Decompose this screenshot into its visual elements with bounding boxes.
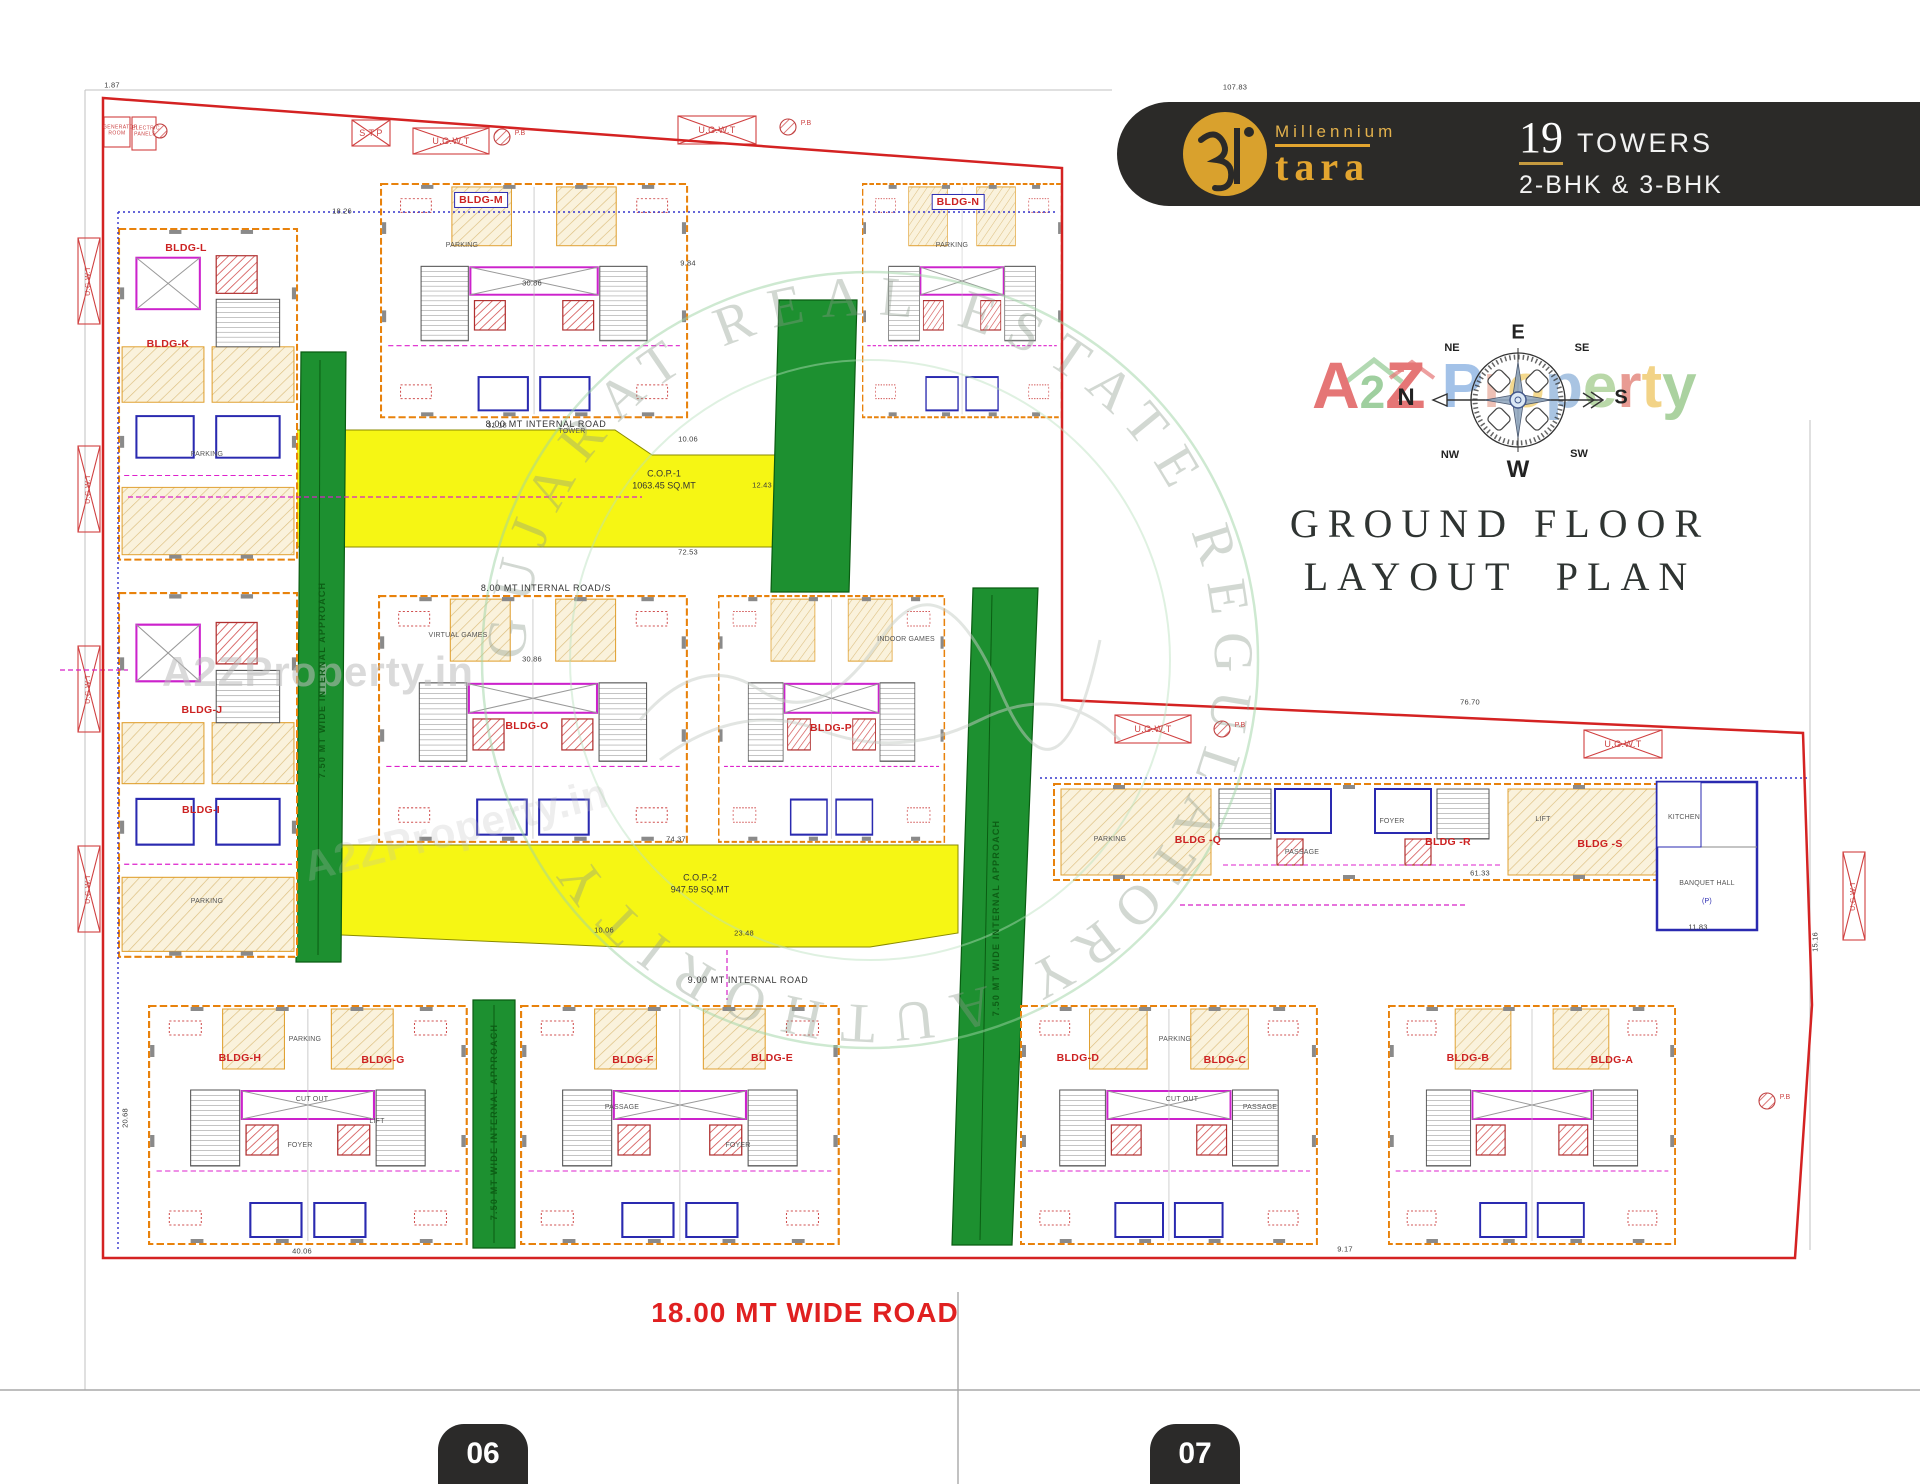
bldg-label-f: BLDG-F — [612, 1054, 653, 1066]
cop2-label: C.O.P.-2 947.59 SQ.MT — [671, 872, 730, 895]
project-stats: 19 TOWERS 2-BHK & 3-BHK — [1519, 116, 1723, 200]
room-label-parking-5: PARKING — [1094, 836, 1126, 844]
room-label-foyer-2: FOYER — [725, 1142, 750, 1150]
fold-marks — [0, 1292, 1920, 1484]
dim-61-33: 61.33 — [1470, 870, 1490, 879]
dim-76-70: 76.70 — [1460, 699, 1480, 708]
approach-road-upper-right — [771, 300, 857, 592]
bldg-label-m: BLDG-M — [454, 192, 508, 208]
cluster-center-right — [719, 596, 945, 842]
room-label-virtual-games: VIRTUAL GAMES — [428, 632, 487, 640]
room-label-foyer-1: FOYER — [287, 1142, 312, 1150]
room-label-parking-6: PARKING — [289, 1036, 321, 1044]
ugwt-label-right-2: U.G.W.T — [1604, 739, 1641, 749]
ugwt-label-left-2: U.G.W.T — [85, 474, 93, 504]
dim-9-17: 9.17 — [1337, 1246, 1352, 1255]
brand-name-label: tara — [1275, 144, 1370, 187]
dim-10-06-b: 10.06 — [594, 927, 614, 936]
ugwt-label-right-1: U.G.W.T — [1134, 724, 1171, 734]
dim-107-83: 107.83 — [1223, 84, 1247, 93]
room-label-banquet-unit: (P) — [1702, 898, 1712, 906]
page-title: GROUND FLOOR LAYOUT PLAN — [1280, 500, 1720, 600]
internal-road-label-3: 9.00 MT INTERNAL ROAD — [688, 975, 809, 985]
pb-label-2: P.B — [801, 120, 811, 128]
cluster-bottom-4 — [1389, 1006, 1675, 1244]
brand-wordmark: Millennium tara — [1275, 122, 1475, 187]
dim-30-86-b: 30.86 — [522, 656, 542, 665]
room-label-passage-2: PASSAGE — [1243, 1104, 1277, 1112]
bldg-label-a: BLDG-A — [1591, 1054, 1634, 1066]
compass-sw-label: SW — [1570, 448, 1588, 460]
ugwt-label-left-4: U.G.W.T — [85, 874, 93, 904]
bldg-label-b: BLDG-B — [1447, 1052, 1490, 1064]
approach-road-label-bottom: 7.50 MT WIDE INTERNAL APPROACH — [489, 1024, 499, 1221]
bldg-label-r: BLDG -R — [1425, 836, 1471, 848]
bldg-label-g: BLDG-G — [361, 1054, 404, 1066]
page-title-line1: GROUND FLOOR — [1280, 500, 1720, 547]
page-number-left[interactable]: 06 — [438, 1424, 528, 1484]
room-label-kitchen: KITCHEN — [1668, 814, 1700, 822]
bhk-label: 2-BHK & 3-BHK — [1519, 171, 1723, 200]
dim-10-06-a: 10.06 — [678, 436, 698, 445]
dim-23-48: 23.48 — [734, 930, 754, 939]
main-road-label: 18.00 MT WIDE ROAD — [651, 1297, 958, 1329]
antara-monogram-icon — [1181, 110, 1269, 198]
dim-1-87: 1.87 — [104, 82, 119, 91]
room-label-cutout-2: CUT OUT — [1166, 1096, 1198, 1104]
internal-road-label-2: 8.00 MT INTERNAL ROAD/S — [481, 583, 611, 593]
bldg-label-h: BLDG-H — [219, 1052, 262, 1064]
compass-n-label: N — [1397, 384, 1414, 412]
pb-label-4: P.B — [1780, 1094, 1790, 1102]
bldg-label-k: BLDG-K — [147, 338, 190, 350]
ugwt-label-top-1: U.G.W.T — [432, 136, 469, 146]
bldg-label-d: BLDG-D — [1057, 1052, 1100, 1064]
tower-count-label: TOWERS — [1577, 128, 1713, 159]
bldg-label-n: BLDG-N — [932, 194, 985, 210]
room-label-cutout-1: CUT OUT — [296, 1096, 328, 1104]
cluster-left-top — [119, 229, 297, 560]
room-label-lift-1: LIFT — [369, 1118, 384, 1126]
approach-road-label-left: 7.50 MT WIDE INTERNAL APPROACH — [317, 582, 327, 779]
bldg-label-l: BLDG-L — [165, 242, 206, 254]
banquet-hall-building — [1657, 782, 1757, 930]
pb-label-3: P.B — [1235, 722, 1245, 730]
generator-room-label: GENERATOR ROOM — [103, 125, 131, 137]
room-label-lift-2: LIFT — [1535, 816, 1550, 824]
layout-plan-sheet: GUJARAT REAL ESTATE REGULATORY AUTHORITY… — [0, 0, 1920, 1484]
page-number-right[interactable]: 07 — [1150, 1424, 1240, 1484]
cop1-label: C.O.P.-1 1063.45 SQ.MT — [632, 468, 696, 491]
dim-11-83: 11.83 — [1688, 924, 1707, 933]
stp-label: S.T.P — [359, 128, 383, 138]
bldg-label-i: BLDG-I — [182, 804, 220, 816]
room-label-parking-2: PARKING — [446, 242, 478, 250]
approach-road-label-right: 7.50 MT WIDE INTERNAL APPROACH — [991, 820, 1001, 1017]
bldg-label-j: BLDG-J — [182, 704, 223, 716]
room-label-indoor-games: INDOOR GAMES — [877, 636, 935, 644]
room-label-banquet: BANQUET HALL — [1679, 880, 1735, 888]
compass-e-label: E — [1511, 322, 1524, 345]
room-label-parking-7: PARKING — [1159, 1036, 1191, 1044]
ugwt-label-left-1: U.G.W.T — [85, 266, 93, 296]
dim-20-68: 20.68 — [122, 1108, 131, 1128]
room-label-parking-1: PARKING — [191, 451, 223, 459]
room-label-passage-3: PASSAGE — [1285, 849, 1319, 857]
dim-31-18: 31.18 — [487, 422, 507, 431]
bldg-label-c: BLDG-C — [1204, 1054, 1247, 1066]
dim-9-84: 9.84 — [680, 260, 695, 269]
bldg-label-q: BLDG -Q — [1175, 834, 1221, 846]
ugwt-label-far-right: U.G.W.T — [1850, 881, 1858, 911]
brand-top-label: Millennium — [1275, 122, 1475, 142]
dim-72-53: 72.53 — [678, 549, 698, 558]
compass-s-label: S — [1614, 387, 1627, 410]
electric-panels-label: ELECTRIC PANELS — [132, 126, 158, 138]
room-label-passage-1: PASSAGE — [605, 1104, 639, 1112]
bldg-label-o: BLDG-O — [505, 720, 548, 732]
compass-se-label: SE — [1575, 342, 1590, 354]
ugwt-label-left-3: U.G.W.T — [85, 674, 93, 704]
dim-74-37: 74.37 — [666, 836, 686, 845]
ugwt-label-top-2: U.G.W.T — [698, 125, 735, 135]
room-label-tower: TOWER — [559, 428, 586, 436]
dim-12-43: 12.43 — [752, 482, 772, 491]
bldg-label-s: BLDG -S — [1577, 838, 1622, 850]
brand-badge: Millennium tara 19 TOWERS 2-BHK & 3-BHK — [1117, 102, 1920, 206]
dim-30-86-a: 30.86 — [522, 280, 542, 289]
pb-label-1: P.B — [515, 130, 525, 138]
dim-15-16: 15.16 — [1812, 932, 1821, 952]
room-label-parking-3: PARKING — [936, 242, 968, 250]
ugwt-boxes-left-column — [78, 238, 100, 932]
tower-count: 19 — [1519, 116, 1563, 165]
compass-w-label: W — [1507, 456, 1530, 484]
page-title-line2: LAYOUT PLAN — [1280, 553, 1720, 600]
room-label-foyer-3: FOYER — [1379, 818, 1404, 826]
compass-nw-label: NW — [1441, 449, 1459, 461]
bldg-label-p: BLDG-P — [810, 722, 852, 734]
room-label-parking-4: PARKING — [191, 898, 223, 906]
dim-40-06: 40.06 — [292, 1248, 312, 1257]
bldg-label-e: BLDG-E — [751, 1052, 793, 1064]
dim-18-26: 18.26 — [332, 208, 352, 217]
compass-ne-label: NE — [1444, 342, 1459, 354]
